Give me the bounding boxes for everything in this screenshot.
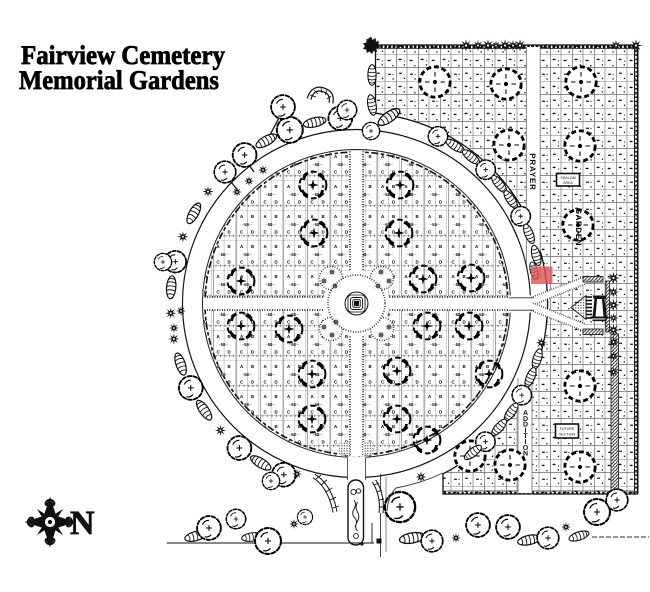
svg-text:N: N	[523, 451, 528, 458]
svg-text:FUTURE: FUTURE	[560, 427, 575, 431]
svg-text:GARDEN: GARDEN	[574, 208, 583, 246]
svg-text:N: N	[70, 505, 95, 542]
svg-text:SHALOM: SHALOM	[560, 176, 575, 180]
svg-text:SECTION: SECTION	[559, 433, 575, 437]
svg-text:PRAYER: PRAYER	[528, 153, 537, 190]
svg-text:Memorial Gardens: Memorial Gardens	[19, 65, 219, 95]
svg-text:AREA: AREA	[563, 181, 573, 185]
